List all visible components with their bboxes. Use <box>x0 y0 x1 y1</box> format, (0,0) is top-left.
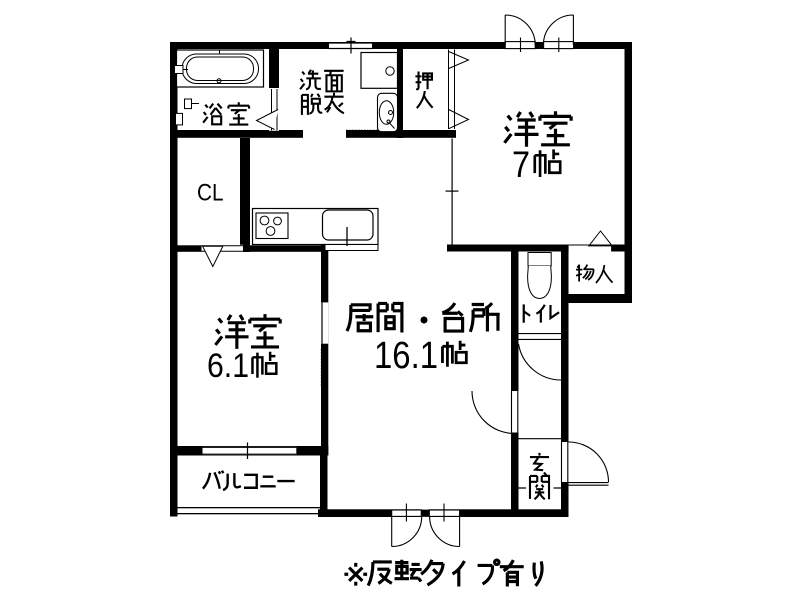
svg-text:16.1: 16.1 <box>374 335 438 377</box>
svg-text:7: 7 <box>512 144 530 185</box>
svg-text:CL: CL <box>197 180 224 207</box>
svg-text:6.1: 6.1 <box>207 347 249 385</box>
